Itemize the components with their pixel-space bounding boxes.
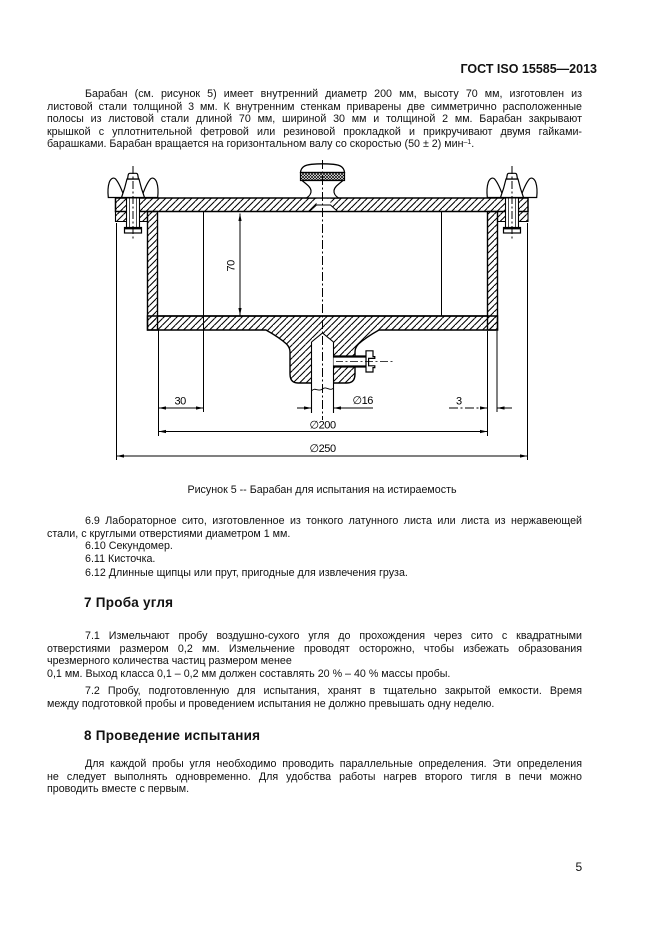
svg-text:∅16: ∅16 bbox=[353, 395, 374, 407]
svg-text:70: 70 bbox=[226, 260, 238, 272]
svg-text:3: 3 bbox=[456, 396, 462, 408]
svg-text:∅250: ∅250 bbox=[310, 443, 336, 455]
svg-text:30: 30 bbox=[175, 396, 187, 408]
svg-text:∅200: ∅200 bbox=[310, 420, 336, 432]
